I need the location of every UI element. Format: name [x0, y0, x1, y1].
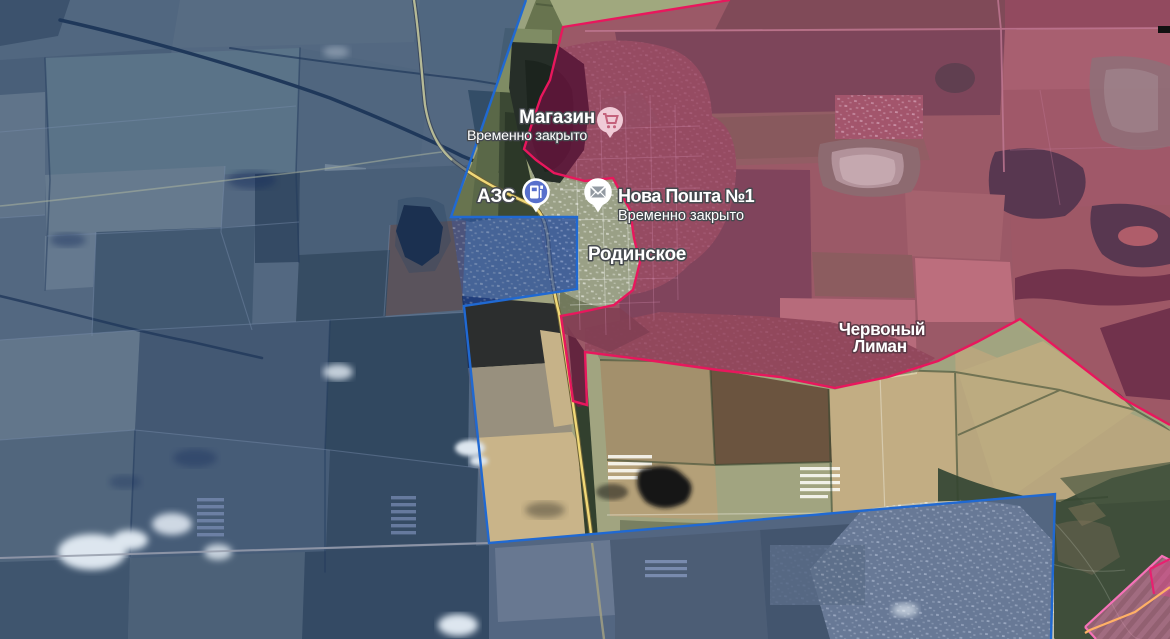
svg-text:Родинское: Родинское: [588, 244, 686, 265]
svg-text:Лиман: Лиман: [853, 336, 907, 356]
svg-text:Временно закрыто: Временно закрыто: [618, 208, 744, 224]
svg-text:АЗС: АЗС: [477, 186, 516, 207]
svg-text:Временно закрыто: Временно закрыто: [467, 128, 587, 144]
svg-text:Нова Пошта №1: Нова Пошта №1: [618, 186, 755, 206]
svg-text:Магазин: Магазин: [519, 107, 595, 128]
